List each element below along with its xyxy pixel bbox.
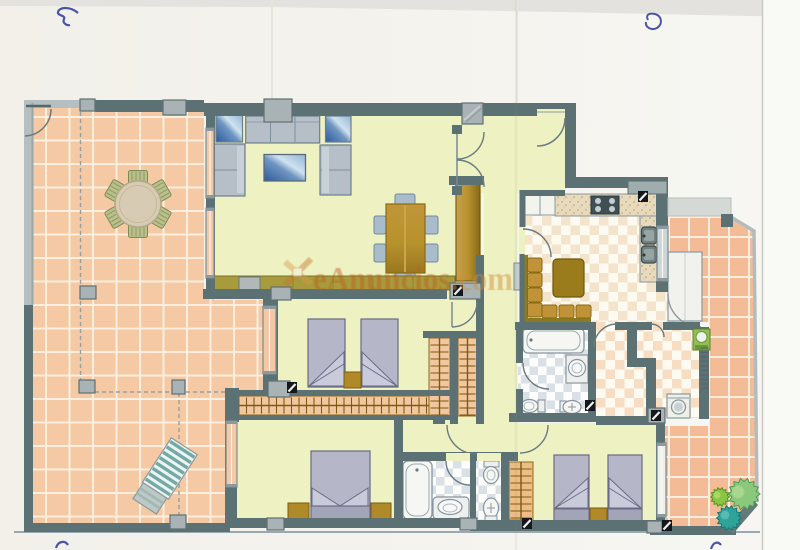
svg-text:eAnuncios.com: eAnuncios.com [313, 261, 513, 298]
